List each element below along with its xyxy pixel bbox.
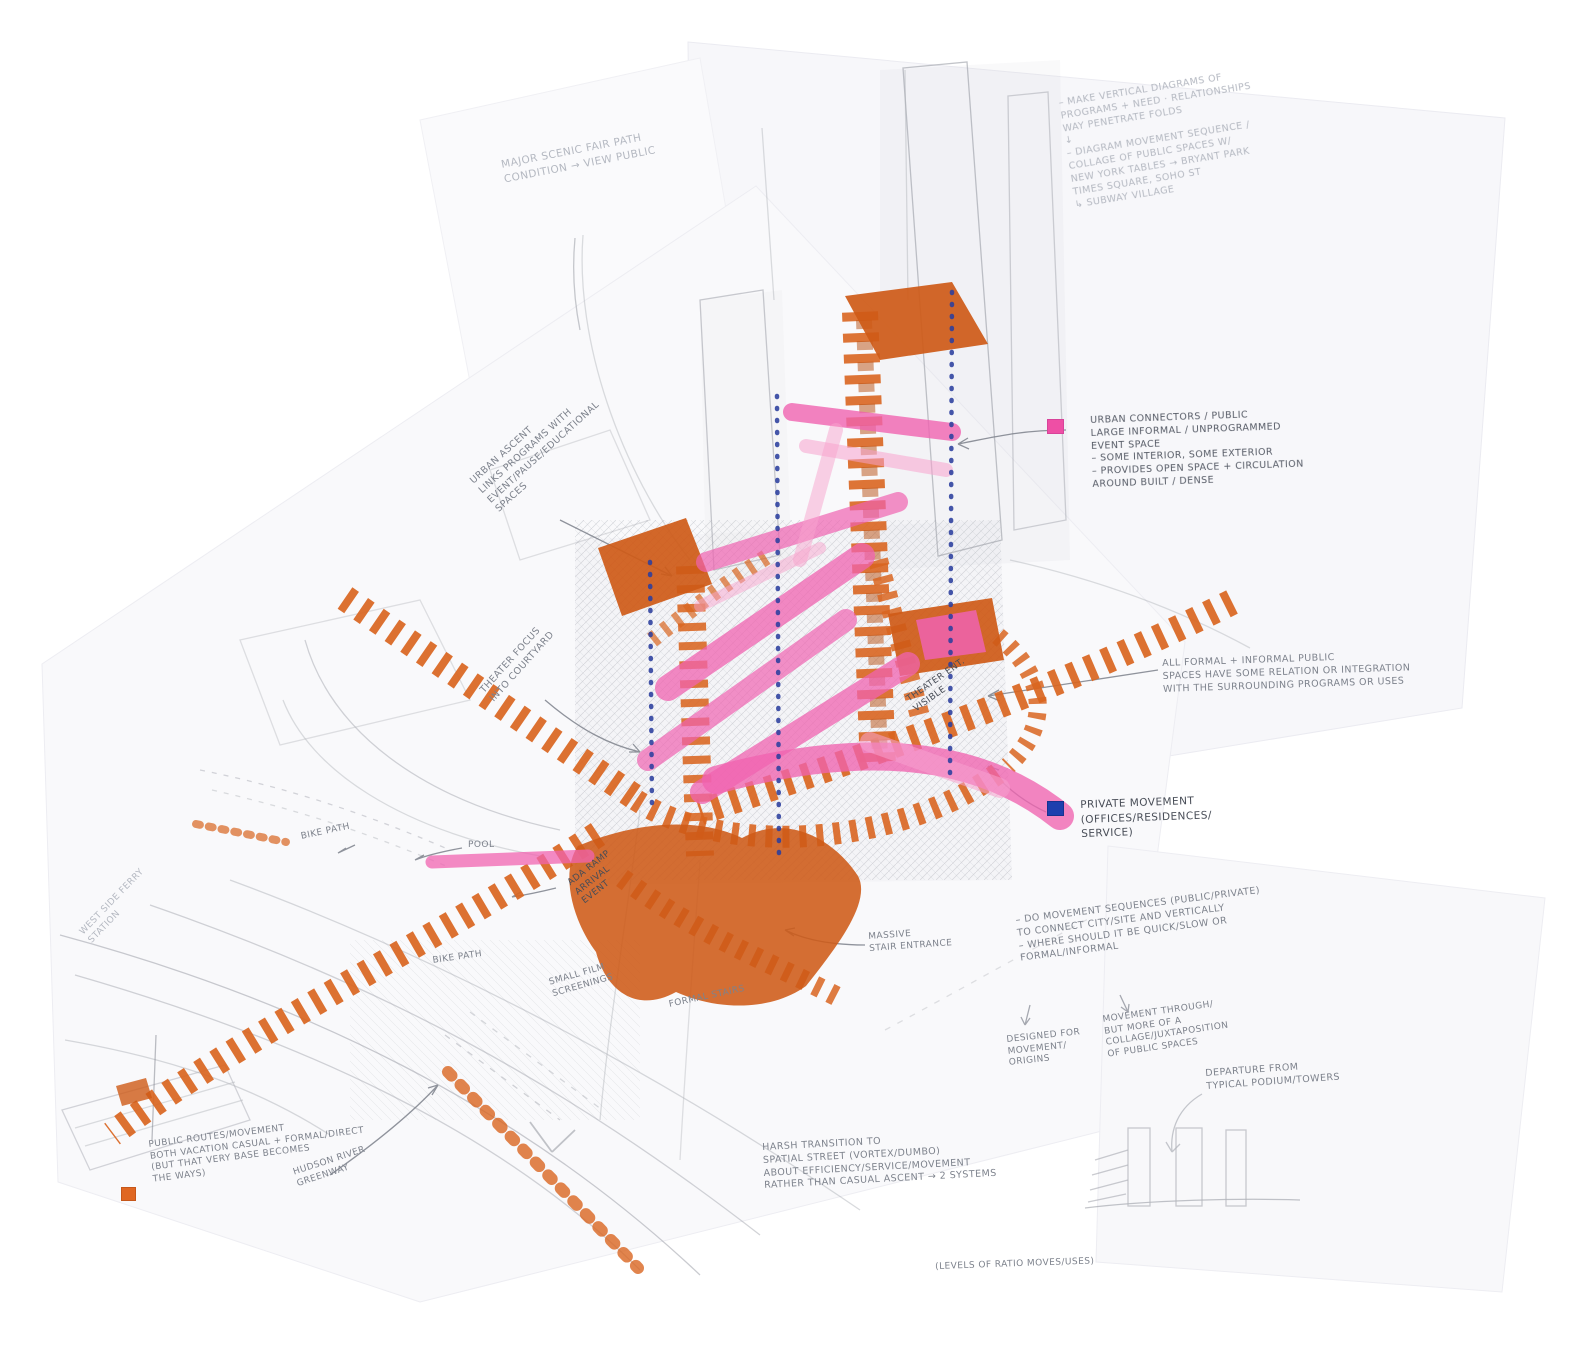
note-urban-connectors: URBAN CONNECTORS / PUBLIC LARGE INFORMAL… [1090, 408, 1304, 492]
sketch-canvas: MAJOR SCENIC FAIR PATH CONDITION → VIEW … [0, 0, 1588, 1346]
note-private-movement: PRIVATE MOVEMENT (OFFICES/RESIDENCES/ SE… [1080, 793, 1213, 842]
note-pool: POOL [468, 840, 494, 852]
orange-swatch-icon [122, 1188, 135, 1200]
blue-swatch-icon [1048, 802, 1063, 815]
pink-swatch-icon [1048, 420, 1063, 433]
